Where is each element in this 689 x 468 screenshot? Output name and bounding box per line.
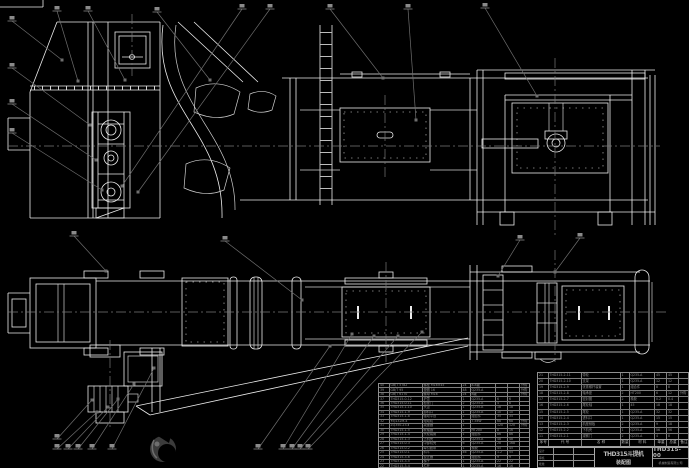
- leader-endpoint: [554, 271, 557, 274]
- bom-cell: [520, 411, 529, 414]
- bom-header-cell: 序号: [538, 440, 549, 446]
- bom-cell: YEJ132M-4: [390, 420, 423, 423]
- callout-number: [155, 7, 160, 11]
- signature-blank: [554, 448, 574, 454]
- item-callout: [88, 383, 136, 450]
- bom-cell: Q235-A: [630, 422, 656, 427]
- callout-number: [90, 444, 95, 448]
- motor-fins: [94, 386, 118, 412]
- bom-cell: 48: [496, 438, 508, 441]
- leader-endpoint: [77, 80, 80, 83]
- bom-cell: 12: [655, 379, 667, 384]
- bom-cell: 16: [508, 464, 520, 467]
- bom-cell: 2: [462, 402, 471, 405]
- leader-line: [57, 412, 97, 449]
- bom-cell: Q235-A: [630, 416, 656, 421]
- bom-cell: 逆止器: [423, 456, 462, 459]
- leader-line: [12, 104, 96, 160]
- bom-cell: 带轮: [582, 373, 621, 378]
- bom-cell: 1: [621, 373, 630, 378]
- bom-cell: 12: [538, 428, 549, 433]
- bom-cell: [520, 429, 529, 432]
- bom-cell: THD315-2-10: [549, 379, 582, 384]
- bom-cell: 28: [379, 438, 390, 441]
- inlet-box: [115, 32, 150, 68]
- bom-cell: [679, 403, 688, 408]
- bom-cell: 39: [379, 388, 390, 391]
- leader-line: [122, 9, 242, 186]
- bom-cell: THD315-2-5: [549, 410, 582, 415]
- bom-cell: GB/T 95: [390, 388, 423, 391]
- bom-cell: 1: [621, 428, 630, 433]
- bom-cell: [679, 410, 688, 415]
- casing-tab: [352, 72, 362, 77]
- leader-line: [138, 9, 270, 192]
- bom-cell: 张紧螺杆装置: [582, 385, 621, 390]
- bom-cell: THD315-2-7: [549, 397, 582, 402]
- bom-cell: 16: [508, 429, 520, 432]
- bom-cell: [520, 447, 529, 450]
- bom-cell: Q235-A: [471, 406, 497, 409]
- bom-cell: 8.8级: [471, 384, 497, 387]
- leader-line: [555, 238, 580, 272]
- boot-door: [512, 103, 608, 173]
- bom-cell: 电动机: [423, 420, 462, 423]
- drawing-subtitle: 装配图: [616, 459, 631, 466]
- callout-number: [10, 63, 15, 67]
- bom-header-cell: 代 号: [549, 440, 582, 446]
- bom-cell: 轴承座: [582, 391, 621, 396]
- bom-cell: 上机壳: [423, 438, 462, 441]
- bom-cell: 55: [508, 451, 520, 454]
- bom-cell: [471, 424, 497, 427]
- bom-cell: 外购: [520, 420, 529, 423]
- bom-cell: [520, 402, 529, 405]
- bom-cell: 6: [496, 397, 508, 400]
- signature-blank: [554, 455, 574, 461]
- bom-cell: 24: [462, 384, 471, 387]
- middle-casing: [240, 74, 648, 200]
- bom-cell: THD315-3-5: [390, 460, 423, 463]
- casing-tab: [440, 72, 450, 77]
- callout-number: [10, 128, 15, 132]
- bom-cell: THD315-2-9: [549, 385, 582, 390]
- leader-endpoint: [397, 335, 400, 338]
- callout-number: [55, 434, 60, 438]
- bom-cell: 21: [538, 373, 549, 378]
- bom-cell: 减速器: [423, 424, 462, 427]
- title-block: 设计审核批准 THD315斗提机 装配图 THD315-00 机械制造有限公司: [537, 447, 689, 468]
- bom-cell: 1: [462, 424, 471, 427]
- bom-cell: 头轮装置: [423, 433, 462, 436]
- leader-line: [74, 236, 106, 271]
- leader-endpoint: [124, 79, 127, 82]
- bom-cell: THD315-1-10: [390, 406, 423, 409]
- bom-cell: [508, 384, 520, 387]
- bom-cell: GB/T 5782: [390, 384, 423, 387]
- bom-cell: 外购: [679, 391, 688, 396]
- bom-cell: 1: [462, 438, 471, 441]
- bom-cell: 螺母 M16: [423, 393, 462, 396]
- bom-cell: 1: [621, 410, 630, 415]
- leader-line: [485, 8, 537, 96]
- leader-line: [225, 241, 302, 300]
- bom-cell: 34: [379, 411, 390, 414]
- item-callout: [8, 16, 64, 62]
- callout-number: [110, 444, 115, 448]
- bom-cell: Q235-A: [471, 451, 497, 454]
- bom-cell: [520, 451, 529, 454]
- bom-cell: ZQ350-23-Ⅱ: [390, 424, 423, 427]
- bom-cell: Q235-A: [630, 373, 656, 378]
- bom-cell: 7.5kW: [471, 420, 497, 423]
- leader-endpoint: [536, 95, 539, 98]
- signature-blank: [574, 448, 594, 454]
- bom-cell: 168: [508, 442, 520, 445]
- bom-cell: [520, 415, 529, 418]
- bom-cell: THD315-2-8: [549, 391, 582, 396]
- bom-cell: 1: [462, 415, 471, 418]
- leader-line: [88, 11, 125, 80]
- bom-cell: 螺栓 M16×45: [423, 384, 462, 387]
- callout-number: [76, 444, 81, 448]
- bom-cell: 0.2: [655, 397, 667, 402]
- callout-number: [10, 16, 15, 20]
- bom-cell: 1: [462, 447, 471, 450]
- leader-endpoint: [105, 270, 108, 273]
- bom-cell: 15: [655, 416, 667, 421]
- bom-cell: [508, 393, 520, 396]
- bom-cell: Q235-A: [630, 379, 656, 384]
- bom-cell: 2: [621, 391, 630, 396]
- bom-cell: 组合件: [471, 415, 497, 418]
- bom-cell: [496, 388, 508, 391]
- bom-header-cell: 数量: [621, 440, 630, 446]
- bom-cell: 30: [379, 429, 390, 432]
- signature-grid: 设计审核批准: [538, 448, 595, 467]
- bom-cell: 1: [462, 411, 471, 414]
- leader-line: [12, 68, 90, 125]
- callout-number: [55, 444, 60, 448]
- bom-row: 22THD315-3-4栏杆1Q235-A1616: [379, 464, 529, 468]
- item-callout: [8, 63, 92, 127]
- bom-cell: 120: [496, 424, 508, 427]
- bom-table-left: 40GB/T 5782螺栓 M16×45248.8级外购39GB/T 95垫圈 …: [378, 383, 530, 468]
- signature-label: 审核: [538, 455, 554, 461]
- bom-cell: 6: [655, 391, 667, 396]
- leader-endpoint: [209, 79, 212, 82]
- bom-cell: 16: [496, 464, 508, 467]
- bom-cell: THD315-1-3: [390, 438, 423, 441]
- shaft: [128, 394, 138, 402]
- bom-cell: 1: [462, 406, 471, 409]
- bom-cell: THD315-0-1: [390, 451, 423, 454]
- bom-cell: [520, 433, 529, 436]
- bom-cell: 密封圈: [582, 397, 621, 402]
- bom-cell: 尾轮轴: [582, 403, 621, 408]
- number-cell: THD315-00 机械制造有限公司: [653, 448, 688, 467]
- item-callout: [108, 367, 156, 450]
- bom-cell: 8: [496, 429, 508, 432]
- callout-number: [86, 6, 91, 10]
- bom-cell: 组合件: [471, 433, 497, 436]
- bom-cell: 68: [496, 420, 508, 423]
- leader-line: [292, 336, 374, 449]
- bom-cell: [679, 379, 688, 384]
- bom-cell: 外购: [520, 384, 529, 387]
- callout-number: [298, 444, 303, 448]
- bucket: [184, 160, 230, 194]
- bom-cell: 栏杆: [423, 464, 462, 467]
- bucket: [194, 84, 240, 118]
- bom-cell: 8: [667, 385, 679, 390]
- bom-cell: THD315-2-11: [549, 373, 582, 378]
- bom-cell: 护罩: [423, 397, 462, 400]
- bom-cell: [520, 438, 529, 441]
- bom-cell: 4: [496, 402, 508, 405]
- bom-cell: 22: [379, 464, 390, 467]
- bom-cell: Q235-A: [471, 402, 497, 405]
- bom-cell: 28: [496, 442, 508, 445]
- bom-cell: 32: [655, 410, 667, 415]
- callout-number: [306, 444, 311, 448]
- bom-cell: 18: [496, 406, 508, 409]
- bom-cell: 13: [538, 422, 549, 427]
- bom-cell: Q235-A: [471, 442, 497, 445]
- internal-chute: [178, 22, 258, 82]
- bom-cell: 45: [508, 447, 520, 450]
- callout-number: [10, 99, 15, 103]
- bom-cell: 38: [379, 393, 390, 396]
- bom-cell: 86: [508, 433, 520, 436]
- callout-number: [66, 444, 71, 448]
- leader-line: [408, 9, 416, 120]
- platform: [30, 86, 160, 90]
- bom-cell: 16: [538, 403, 549, 408]
- bom-cell: 15: [667, 416, 679, 421]
- bom-cell: 橡胶: [471, 447, 497, 450]
- bom-table-right: 21THD315-2-11带轮1Q235-A454520THD315-2-10支…: [537, 372, 689, 440]
- bom-cell: 进料口: [582, 416, 621, 421]
- title-cell: THD315斗提机 装配图: [595, 448, 653, 467]
- bom-cell: 1: [621, 416, 630, 421]
- leader-endpoint: [101, 189, 104, 192]
- signature-label: 批准: [538, 461, 554, 467]
- bom-cell: 头罩: [423, 406, 462, 409]
- leader-endpoint: [421, 331, 424, 334]
- bom-cell: 12: [667, 391, 679, 396]
- bom-cell: 18: [508, 406, 520, 409]
- bom-cell: THD315-0-12: [390, 397, 423, 400]
- bom-cell: 27: [379, 442, 390, 445]
- item-callout: [53, 399, 94, 440]
- bom-cell: 22: [508, 460, 520, 463]
- item-callout: [279, 333, 354, 450]
- leader-line: [12, 21, 62, 60]
- bom-cell: 6: [508, 397, 520, 400]
- item-callout: [8, 128, 104, 192]
- bom-cell: 36: [379, 402, 390, 405]
- bom-cell: 0.4: [667, 397, 679, 402]
- bom-cell: 24: [462, 393, 471, 396]
- bom-cell: 料斗: [423, 451, 462, 454]
- bom-cell: 1: [462, 464, 471, 467]
- callout-number: [518, 235, 523, 239]
- leader-endpoint: [121, 185, 124, 188]
- bom-cell: 24: [379, 456, 390, 459]
- bom-cell: 45: [630, 403, 656, 408]
- bom-cell: THD315-2-3: [549, 422, 582, 427]
- bom-cell: 46: [462, 451, 471, 454]
- boot-section: [477, 70, 655, 225]
- bom-cell: Q235-A: [471, 411, 497, 414]
- bom-cell: 橡胶: [630, 397, 656, 402]
- bom-cell: 检视门: [423, 402, 462, 405]
- bom-cell: 8: [508, 402, 520, 405]
- head-plan: [30, 271, 164, 355]
- bom-cell: 牵引胶带: [423, 447, 462, 450]
- bom-cell: 1: [621, 379, 630, 384]
- bom-cell: 1: [462, 460, 471, 463]
- callout-number: [223, 236, 228, 240]
- item-callout: [326, 4, 385, 80]
- discharge-spout: [8, 118, 30, 150]
- signature-row: 审核: [538, 455, 594, 462]
- flange-ring: [292, 277, 301, 349]
- leader-endpoint: [301, 299, 304, 302]
- signature-blank: [574, 455, 594, 461]
- item-callout: [554, 233, 585, 274]
- callout-number: [578, 233, 583, 237]
- bom-cell: 1: [462, 420, 471, 423]
- leader-endpoint: [61, 59, 64, 62]
- bom-header-cell: 总重: [667, 440, 679, 446]
- bom-cell: THD315-2-4: [549, 416, 582, 421]
- bom-cell: Q235-A: [471, 397, 497, 400]
- bom-cell: 31: [379, 424, 390, 427]
- bom-cell: 40: [379, 384, 390, 387]
- bucket: [248, 91, 276, 112]
- drawing-number: THD315-00: [653, 448, 688, 459]
- bom-cell: 22: [496, 460, 508, 463]
- bom-cell: GB/T 6170: [390, 393, 423, 396]
- leader-line: [330, 9, 383, 78]
- bom-cell: 35: [508, 415, 520, 418]
- bom-cell: [520, 460, 529, 463]
- bom-cell: Q235-A: [471, 464, 497, 467]
- signature-row: 设计: [538, 448, 594, 455]
- bom-cell: 56: [667, 428, 679, 433]
- bom-cell: 32: [667, 410, 679, 415]
- item-callout: [8, 99, 98, 162]
- flange-ring-inner: [254, 277, 258, 349]
- bom-cell: 48: [508, 438, 520, 441]
- bom-cell: 17: [538, 397, 549, 402]
- bom-cell: 26: [379, 447, 390, 450]
- bom-cell: [496, 384, 508, 387]
- bom-cell: 外购: [520, 424, 529, 427]
- item-callout: [53, 411, 99, 450]
- bom-cell: 12: [667, 379, 679, 384]
- bom-cell: 18: [538, 391, 549, 396]
- bom-cell: 20: [538, 379, 549, 384]
- signature-row: 批准: [538, 461, 594, 467]
- bom-cell: 10: [508, 411, 520, 414]
- callout-number: [55, 6, 60, 10]
- bom-header-cell: 材 料: [630, 440, 656, 446]
- bom-cell: 14: [538, 416, 549, 421]
- bom-header-cell: 名 称: [582, 440, 621, 446]
- bom-cell: 尾轮: [582, 410, 621, 415]
- leader-endpoint: [95, 159, 98, 162]
- boot-plan: [470, 265, 652, 363]
- leader-endpoint: [373, 335, 376, 338]
- bom-cell: 35: [496, 415, 508, 418]
- bom-cell: [520, 464, 529, 467]
- bom-cell: 9: [496, 456, 508, 459]
- item-callout: [53, 6, 80, 83]
- leader-line: [92, 384, 134, 449]
- casing-tube-inner: [305, 287, 470, 339]
- bom-cell: [508, 388, 520, 391]
- bom-header-cell: 备注: [679, 440, 688, 446]
- bom-cell: 组合件: [630, 385, 656, 390]
- leader-endpoint: [107, 406, 110, 409]
- bom-cell: [496, 393, 508, 396]
- bom-cell: 2: [621, 397, 630, 402]
- bom-cell: THD315-0-2: [390, 447, 423, 450]
- bom-cell: 中部机壳: [423, 442, 462, 445]
- bom-cell: THD315-2-2: [549, 428, 582, 433]
- bom-cell: [520, 397, 529, 400]
- takeup-bar: [482, 139, 538, 148]
- item-callout: [84, 6, 127, 82]
- bom-cell: 18: [655, 403, 667, 408]
- takeup-bearing: [547, 134, 565, 152]
- callout-number: [268, 4, 273, 8]
- bom-cell: Q235-A: [471, 438, 497, 441]
- boot-cover-plate: [562, 286, 624, 340]
- bom-cell: 25: [379, 451, 390, 454]
- company-name: 机械制造有限公司: [653, 459, 688, 467]
- drive-assembly: [92, 112, 130, 218]
- leader-line: [57, 11, 78, 81]
- bom-cell: 驱动平台: [423, 415, 462, 418]
- callout-number: [328, 4, 333, 8]
- leader-line: [258, 346, 330, 449]
- bom-cell: [520, 406, 529, 409]
- bom-cell: THD315-1-5: [390, 429, 423, 432]
- bom-cell: HT200: [471, 429, 497, 432]
- signature-blank: [574, 461, 594, 467]
- bom-cell: 86: [496, 433, 508, 436]
- bom-cell: 56: [655, 428, 667, 433]
- bom-cell: 梯子: [423, 460, 462, 463]
- leader-line: [68, 407, 108, 449]
- callout-number: [256, 444, 261, 448]
- bom-cell: 1: [621, 385, 630, 390]
- bom-cell: THD315-1-9: [390, 411, 423, 414]
- bom-cell: 29: [379, 433, 390, 436]
- sheet-border-fragment: [0, 0, 43, 7]
- bom-cell: Q235-A: [471, 460, 497, 463]
- leader-endpoint: [91, 399, 94, 402]
- leader-endpoint: [497, 275, 500, 278]
- bom-cell: 15: [538, 410, 549, 415]
- bom-cell: 6: [462, 442, 471, 445]
- bom-cell: THD315-3-4: [390, 464, 423, 467]
- signature-label: 设计: [538, 448, 554, 454]
